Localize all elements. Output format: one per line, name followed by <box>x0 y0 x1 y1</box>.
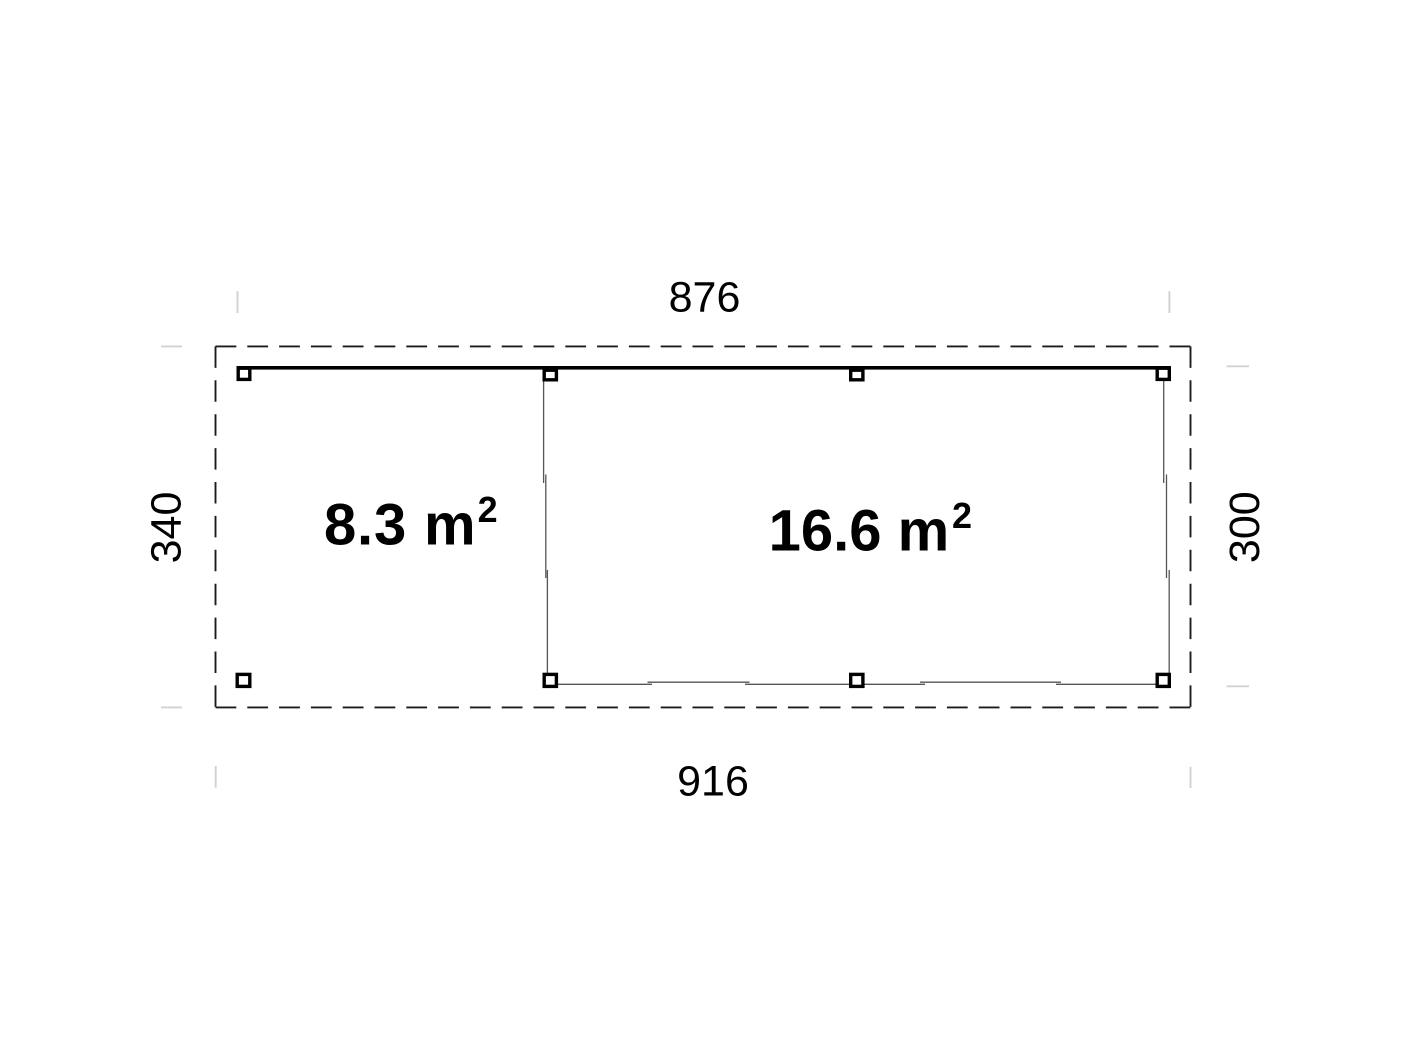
svg-text:876: 876 <box>669 274 741 322</box>
svg-text:16.6 m: 16.6 m <box>769 498 950 563</box>
svg-text:2: 2 <box>478 489 498 530</box>
svg-text:340: 340 <box>142 492 190 564</box>
svg-text:916: 916 <box>677 757 749 805</box>
svg-text:8.3 m: 8.3 m <box>324 492 476 557</box>
svg-text:300: 300 <box>1221 491 1269 563</box>
svg-text:2: 2 <box>952 495 972 536</box>
